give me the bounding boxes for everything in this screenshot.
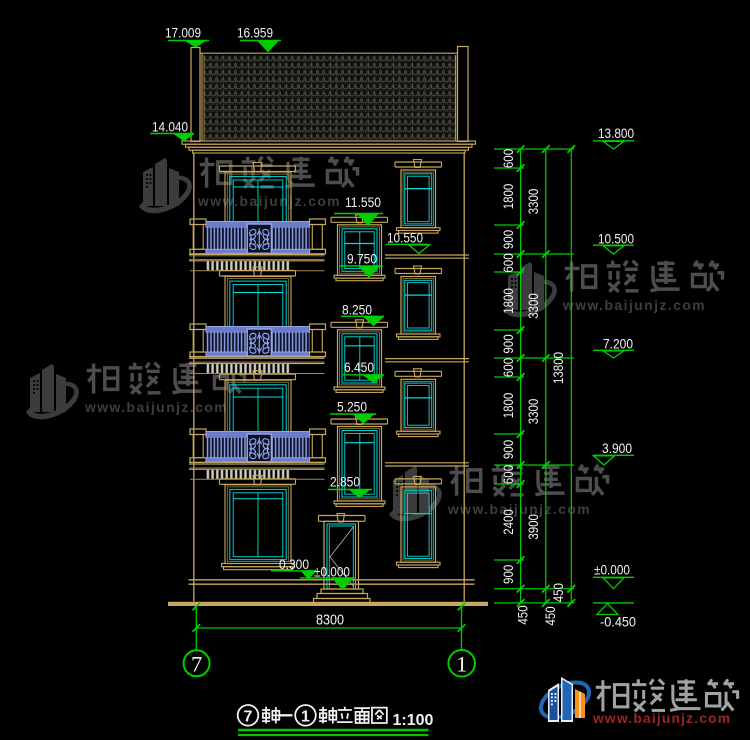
svg-text:17.009: 17.009 [165, 26, 201, 42]
svg-text:1: 1 [301, 709, 310, 726]
svg-text:450: 450 [543, 606, 558, 626]
svg-text:www.baijunjz.com: www.baijunjz.com [592, 711, 731, 726]
svg-text:13.800: 13.800 [598, 126, 634, 142]
svg-text:www.baijunjz.com: www.baijunjz.com [197, 194, 341, 209]
svg-text:450: 450 [551, 583, 566, 603]
svg-text:450: 450 [516, 605, 531, 625]
svg-text:13800: 13800 [551, 352, 566, 384]
svg-text:8300: 8300 [316, 612, 344, 629]
svg-text:1: 1 [456, 652, 467, 677]
svg-text:www.baijunjz.com: www.baijunjz.com [447, 502, 591, 517]
svg-text:1800: 1800 [501, 288, 516, 314]
svg-text:3300: 3300 [526, 293, 541, 319]
svg-text:1800: 1800 [501, 183, 516, 209]
svg-text:900: 900 [501, 440, 516, 460]
svg-text:7: 7 [191, 652, 202, 677]
svg-text:5.250: 5.250 [337, 400, 367, 416]
svg-text:16.959: 16.959 [237, 26, 273, 42]
svg-text:1:100: 1:100 [393, 712, 434, 729]
svg-text:7: 7 [244, 709, 253, 726]
svg-text:9.750: 9.750 [347, 252, 377, 268]
svg-text:900: 900 [501, 334, 516, 354]
svg-text:6.450: 6.450 [344, 360, 374, 376]
svg-text:600: 600 [501, 358, 516, 378]
svg-text:±0.000: ±0.000 [594, 563, 630, 579]
svg-text:3300: 3300 [526, 188, 541, 214]
svg-text:-0.450: -0.450 [600, 615, 636, 631]
svg-text:2400: 2400 [501, 509, 516, 535]
svg-text:900: 900 [501, 564, 516, 584]
svg-text:3900: 3900 [526, 514, 541, 540]
svg-text:3300: 3300 [526, 398, 541, 424]
svg-text:www.baijunjz.com: www.baijunjz.com [562, 298, 706, 313]
svg-text:600: 600 [501, 253, 516, 273]
svg-text:900: 900 [501, 230, 516, 250]
svg-text:2.850: 2.850 [330, 475, 360, 491]
svg-text:600: 600 [501, 149, 516, 169]
svg-text:www.baijunjz.com: www.baijunjz.com [84, 400, 228, 415]
svg-text:11.550: 11.550 [345, 195, 381, 211]
svg-text:1800: 1800 [501, 392, 516, 418]
svg-text:600: 600 [501, 465, 516, 485]
